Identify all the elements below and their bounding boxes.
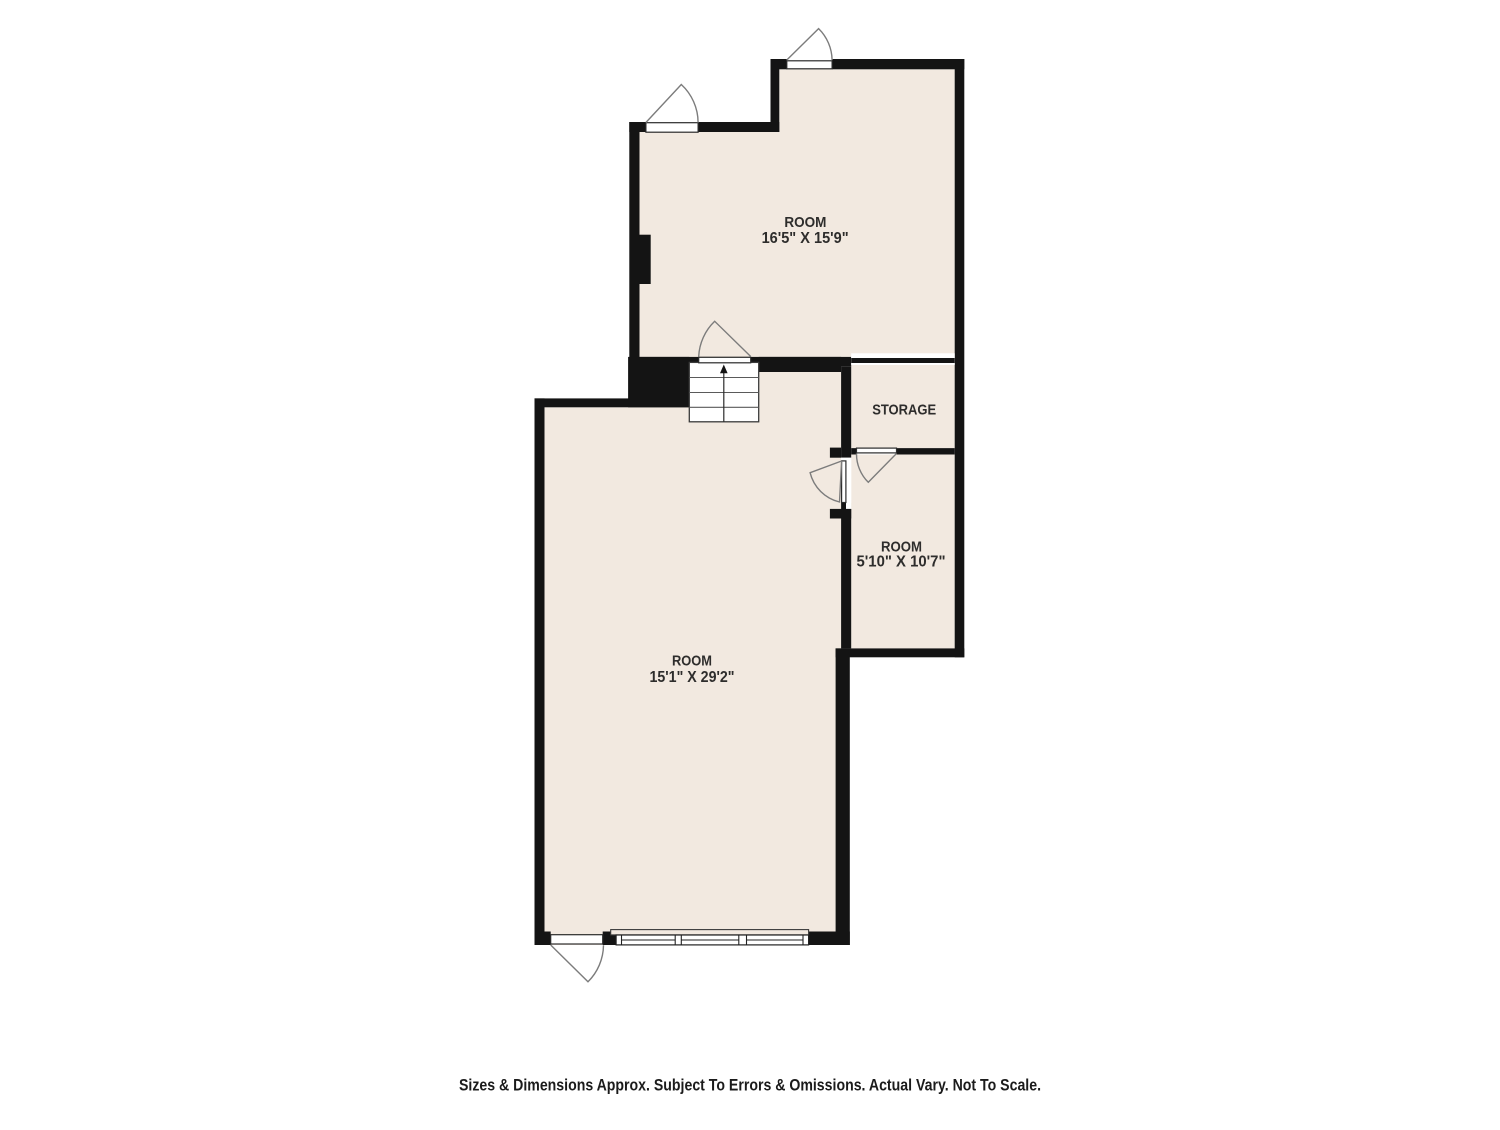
- svg-text:ROOM: ROOM: [784, 214, 826, 231]
- svg-text:ROOM: ROOM: [672, 653, 712, 670]
- svg-text:5'10" X 10'7": 5'10" X 10'7": [857, 554, 946, 571]
- svg-text:STORAGE: STORAGE: [872, 402, 936, 419]
- svg-text:15'1" X 29'2": 15'1" X 29'2": [650, 669, 735, 686]
- svg-text:Sizes & Dimensions Approx. Sub: Sizes & Dimensions Approx. Subject To Er…: [459, 1076, 1041, 1095]
- svg-text:16'5" X 15'9": 16'5" X 15'9": [762, 230, 849, 247]
